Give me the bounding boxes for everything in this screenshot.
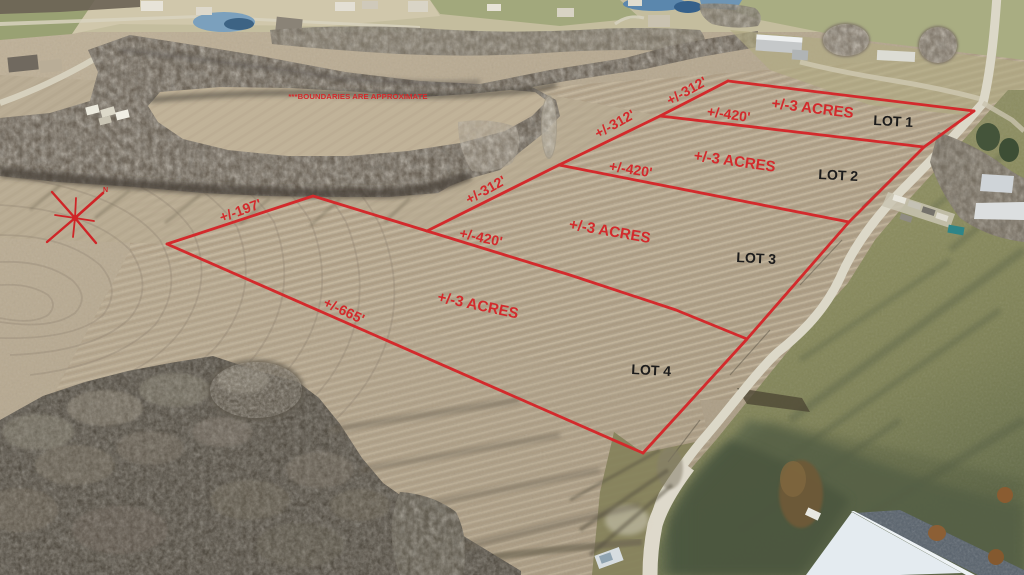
svg-text:LOT 3: LOT 3	[736, 249, 777, 267]
svg-text:***BOUNDARIES ARE APPROXIMATE: ***BOUNDARIES ARE APPROXIMATE	[288, 92, 427, 101]
svg-text:N: N	[103, 187, 108, 194]
svg-text:LOT 4: LOT 4	[631, 361, 672, 379]
svg-text:LOT 2: LOT 2	[818, 166, 859, 184]
svg-text:LOT 1: LOT 1	[873, 112, 914, 130]
